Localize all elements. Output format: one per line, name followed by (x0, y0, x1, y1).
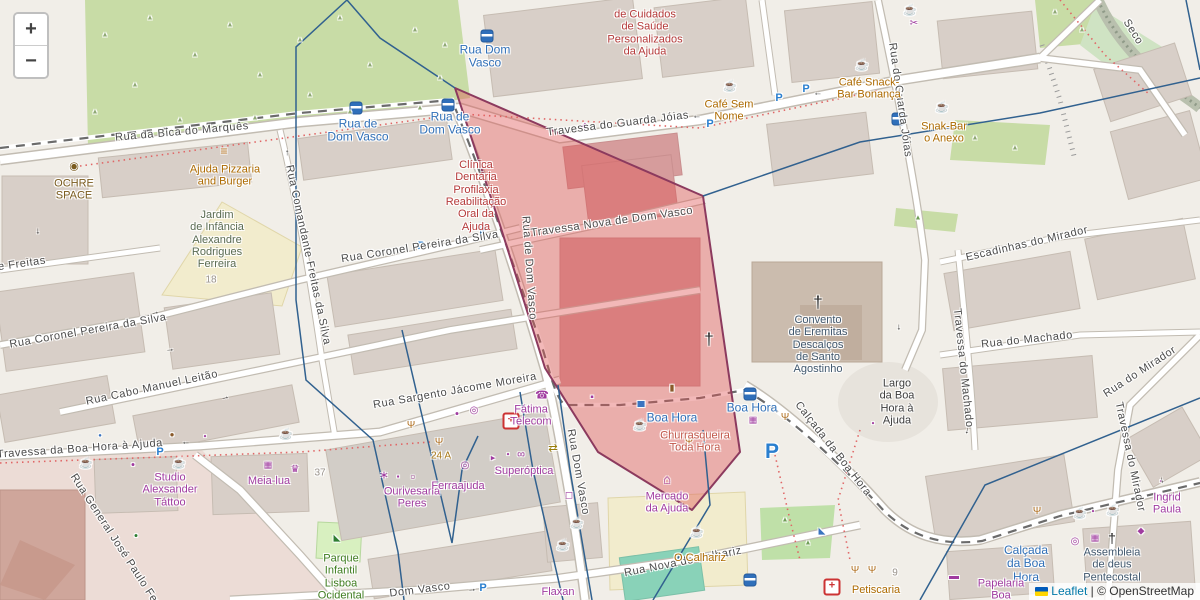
zoom-in-button[interactable]: + (15, 14, 47, 45)
osm-copyright: © OpenStreetMap (1097, 584, 1194, 598)
green-area (950, 120, 1050, 165)
attribution-bar: Leaflet | © OpenStreetMap (1029, 583, 1200, 600)
map-tiles (0, 0, 1200, 600)
zoom-control: + − (13, 12, 49, 79)
ukraine-flag-icon (1035, 587, 1048, 596)
leaflet-map-canvas[interactable]: PPPPPPPP☕☕☕☕☕☕☕☕☕☕☕☕☕†††ΨΨΨΨΨΨΨ☎✂∞♛⌂⇄++≡… (0, 0, 1200, 600)
largo-plaza (838, 362, 938, 442)
convento-building-wing (800, 305, 862, 360)
zoom-out-button[interactable]: − (15, 45, 47, 77)
leaflet-link[interactable]: Leaflet (1051, 584, 1087, 598)
attribution-separator: | (1087, 584, 1097, 598)
